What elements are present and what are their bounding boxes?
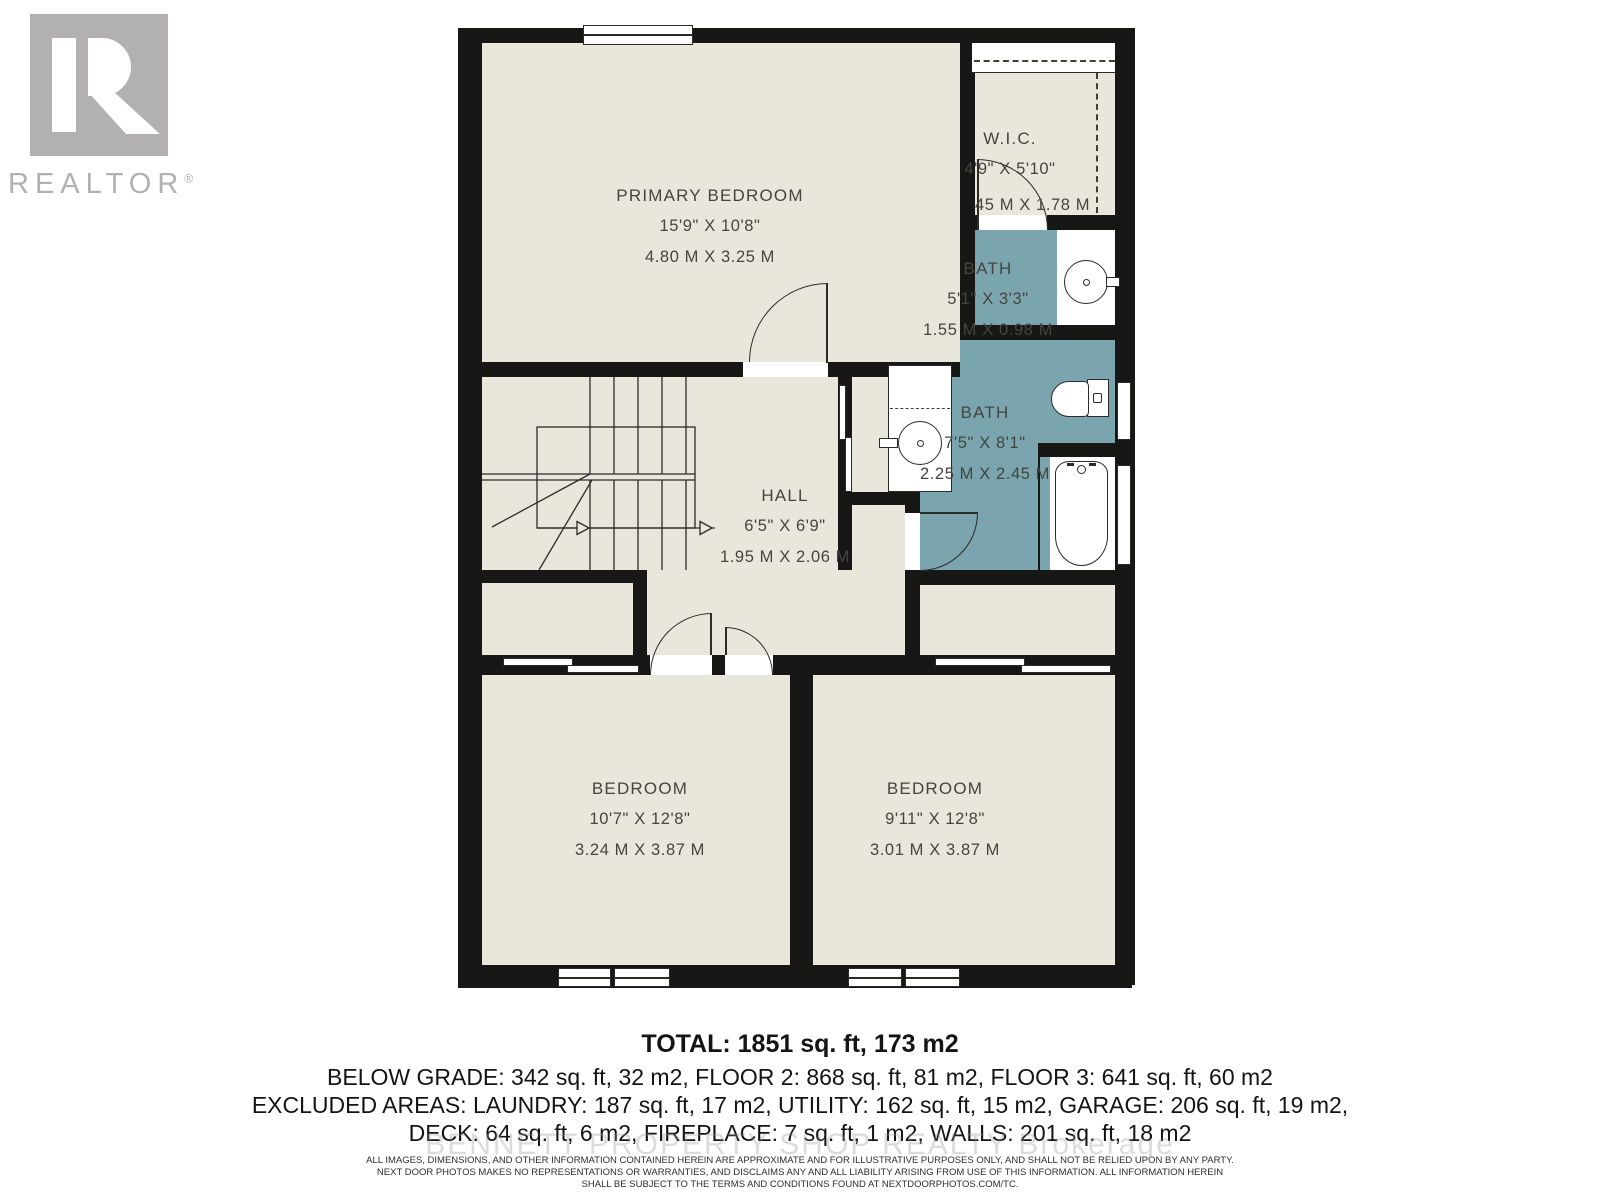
window-bath-2 <box>1117 465 1131 565</box>
room-name: BEDROOM <box>785 773 1085 804</box>
label-wic-metric: 45 M X 1.78 M <box>975 190 1125 221</box>
room-name: BATH <box>885 397 1085 428</box>
excluded-areas-text: EXCLUDED AREAS: LAUNDRY: 187 sq. ft, 17 … <box>0 1092 1600 1119</box>
wall-primary-south-left <box>482 362 743 377</box>
wic-rod-dashed-line <box>974 60 1115 62</box>
closet-left-slider-panel <box>567 665 639 673</box>
toilet-button <box>1093 393 1102 403</box>
bath-door-opening <box>905 513 920 570</box>
label-bedroom-left: BEDROOM 10'7" X 12'8" 3.24 M X 3.87 M <box>490 773 790 866</box>
label-bath-main: BATH 7'5" X 8'1" 2.25 M X 2.45 M <box>885 397 1085 490</box>
label-bath-upper: BATH 5'1" X 3'3" 1.55 M X 0.98 M <box>908 253 1068 346</box>
sink-upper-drain <box>1083 279 1090 286</box>
room-dim-metric: 3.01 M X 3.87 M <box>785 835 1085 866</box>
disclaimer-line-3: SHALL BE SUBJECT TO THE TERMS AND CONDIT… <box>0 1179 1600 1191</box>
hall-closet-floor <box>852 362 888 492</box>
window-bedroom-left-2 <box>614 968 670 987</box>
room-name: HALL <box>685 480 885 511</box>
bath-door-leaf <box>920 512 978 514</box>
room-dim-imperial: 5'1" X 3'3" <box>908 284 1068 315</box>
floor-areas-text: BELOW GRADE: 342 sq. ft, 32 m2, FLOOR 2:… <box>0 1064 1600 1091</box>
room-dim-imperial: 15'9" X 10'8" <box>535 211 885 242</box>
hall-closet-slider-panel <box>839 385 846 440</box>
wall-closet-left-east <box>633 583 647 655</box>
room-dim-metric: 4.80 M X 3.25 M <box>535 242 885 273</box>
closet-left-slider-panel <box>503 658 573 666</box>
wall-bath-south <box>905 570 1115 585</box>
window-bath-1 <box>1117 382 1131 440</box>
room-dim-metric: 45 M X 1.78 M <box>975 190 1125 221</box>
closet-right-slider-panel <box>1021 665 1111 673</box>
wall-exterior-left <box>458 28 482 985</box>
wall-stairs-south <box>482 570 647 583</box>
room-dim-imperial: 4'9" X 5'10" <box>950 154 1070 185</box>
room-dim-metric: 1.95 M X 2.06 M <box>685 542 885 573</box>
bedroom-left-door-leaf <box>710 613 712 655</box>
wall-closet-right-west <box>905 585 920 655</box>
realtor-logo-text: REALTOR® <box>8 168 190 201</box>
window-bedroom-right-1 <box>848 968 902 987</box>
brokerage-watermark: BENNETT PROPERTY SHOP REALTY Brokerage <box>0 1128 1600 1162</box>
label-primary-bedroom: PRIMARY BEDROOM 15'9" X 10'8" 4.80 M X 3… <box>535 180 885 273</box>
room-dim-metric: 1.55 M X 0.98 M <box>908 315 1068 346</box>
primary-door-opening <box>743 362 828 377</box>
room-dim-imperial: 9'11" X 12'8" <box>785 804 1085 835</box>
label-hall: HALL 6'5" X 6'9" 1.95 M X 2.06 M <box>685 480 885 573</box>
wic-shelf <box>972 43 1115 73</box>
closet-right-slider-panel <box>935 658 1025 666</box>
window-bedroom-left-1 <box>558 968 611 987</box>
realtor-word: REALTOR <box>8 168 184 200</box>
window-primary <box>583 25 693 45</box>
sink-upper-tap <box>1106 277 1120 287</box>
room-name: W.I.C. <box>950 123 1070 154</box>
realtor-logo-icon <box>30 14 168 156</box>
room-name: BATH <box>908 253 1068 284</box>
label-bedroom-right: BEDROOM 9'11" X 12'8" 3.01 M X 3.87 M <box>785 773 1085 866</box>
floor-plan-page: REALTOR® BENNETT PROPERTY SHOP REALTY Br… <box>0 0 1600 1200</box>
primary-door-leaf <box>826 283 828 363</box>
disclaimer-line-2: NEXT DOOR PHOTOS MAKES NO REPRESENTATION… <box>0 1167 1600 1179</box>
wall-exterior-top <box>458 28 1132 43</box>
room-dim-imperial: 7'5" X 8'1" <box>885 428 1085 459</box>
room-name: BEDROOM <box>490 773 790 804</box>
tub-handle-right <box>1089 463 1096 466</box>
window-bedroom-right-2 <box>905 968 960 987</box>
floor-plan: PRIMARY BEDROOM 15'9" X 10'8" 4.80 M X 3… <box>455 25 1135 988</box>
registered-mark: ® <box>184 171 193 185</box>
wall-bath-door-stub <box>905 505 920 513</box>
room-dim-metric: 2.25 M X 2.45 M <box>885 459 1085 490</box>
room-dim-metric: 3.24 M X 3.87 M <box>490 835 790 866</box>
label-wic: W.I.C. 4'9" X 5'10" <box>950 123 1070 185</box>
realtor-r-glyph <box>30 14 168 156</box>
room-dim-imperial: 6'5" X 6'9" <box>685 511 885 542</box>
room-name: PRIMARY BEDROOM <box>535 180 885 211</box>
bedroom-right-door-leaf <box>725 627 727 655</box>
wall-bedrooms-north-stub <box>712 655 725 675</box>
room-dim-imperial: 10'7" X 12'8" <box>490 804 790 835</box>
total-area-text: TOTAL: 1851 sq. ft, 173 m2 <box>0 1030 1600 1059</box>
